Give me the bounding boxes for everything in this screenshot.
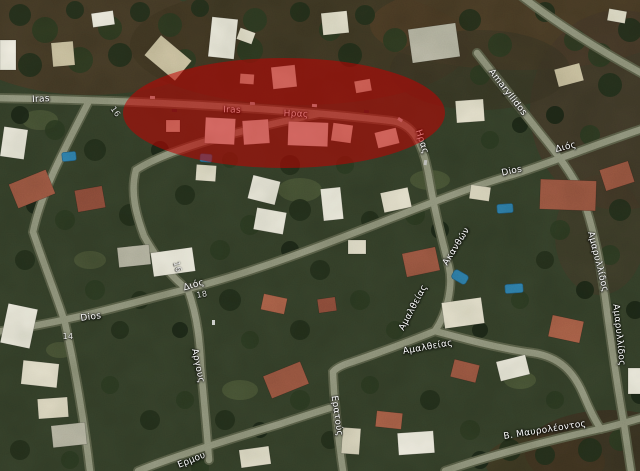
satellite-imagery [0,0,640,471]
satellite-map-canvas[interactable]: Iras Iras Ηρας Ηρας Amaryllidos Διός Dio… [0,0,640,471]
